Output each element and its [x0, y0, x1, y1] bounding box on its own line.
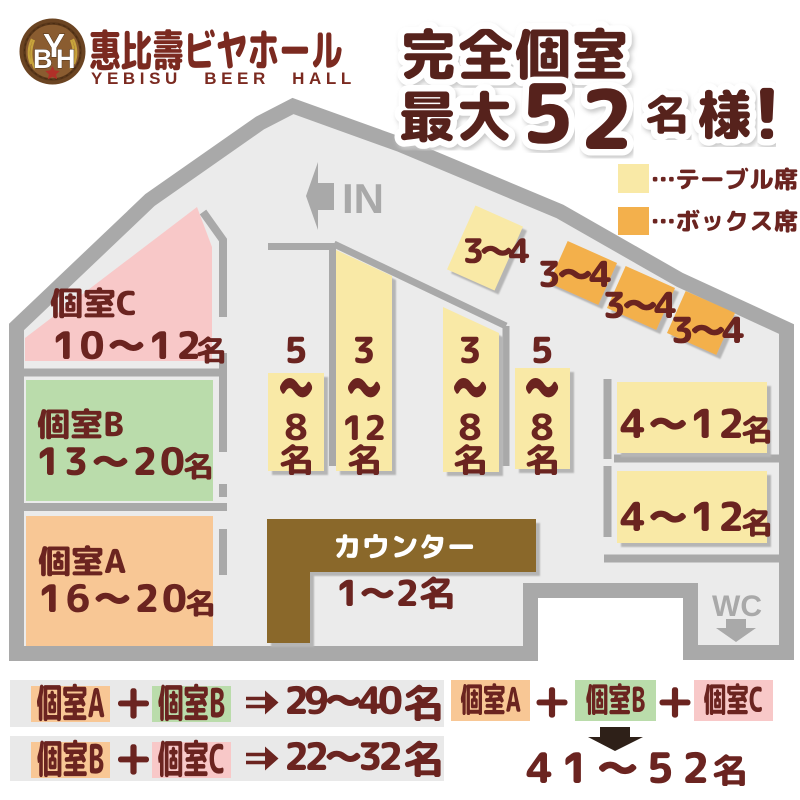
svg-text:IN: IN [342, 175, 384, 222]
svg-text:YEBISU BEER HALL: YEBISU BEER HALL [91, 69, 356, 88]
svg-text:WC: WC [712, 590, 762, 623]
svg-text:H: H [56, 44, 76, 74]
